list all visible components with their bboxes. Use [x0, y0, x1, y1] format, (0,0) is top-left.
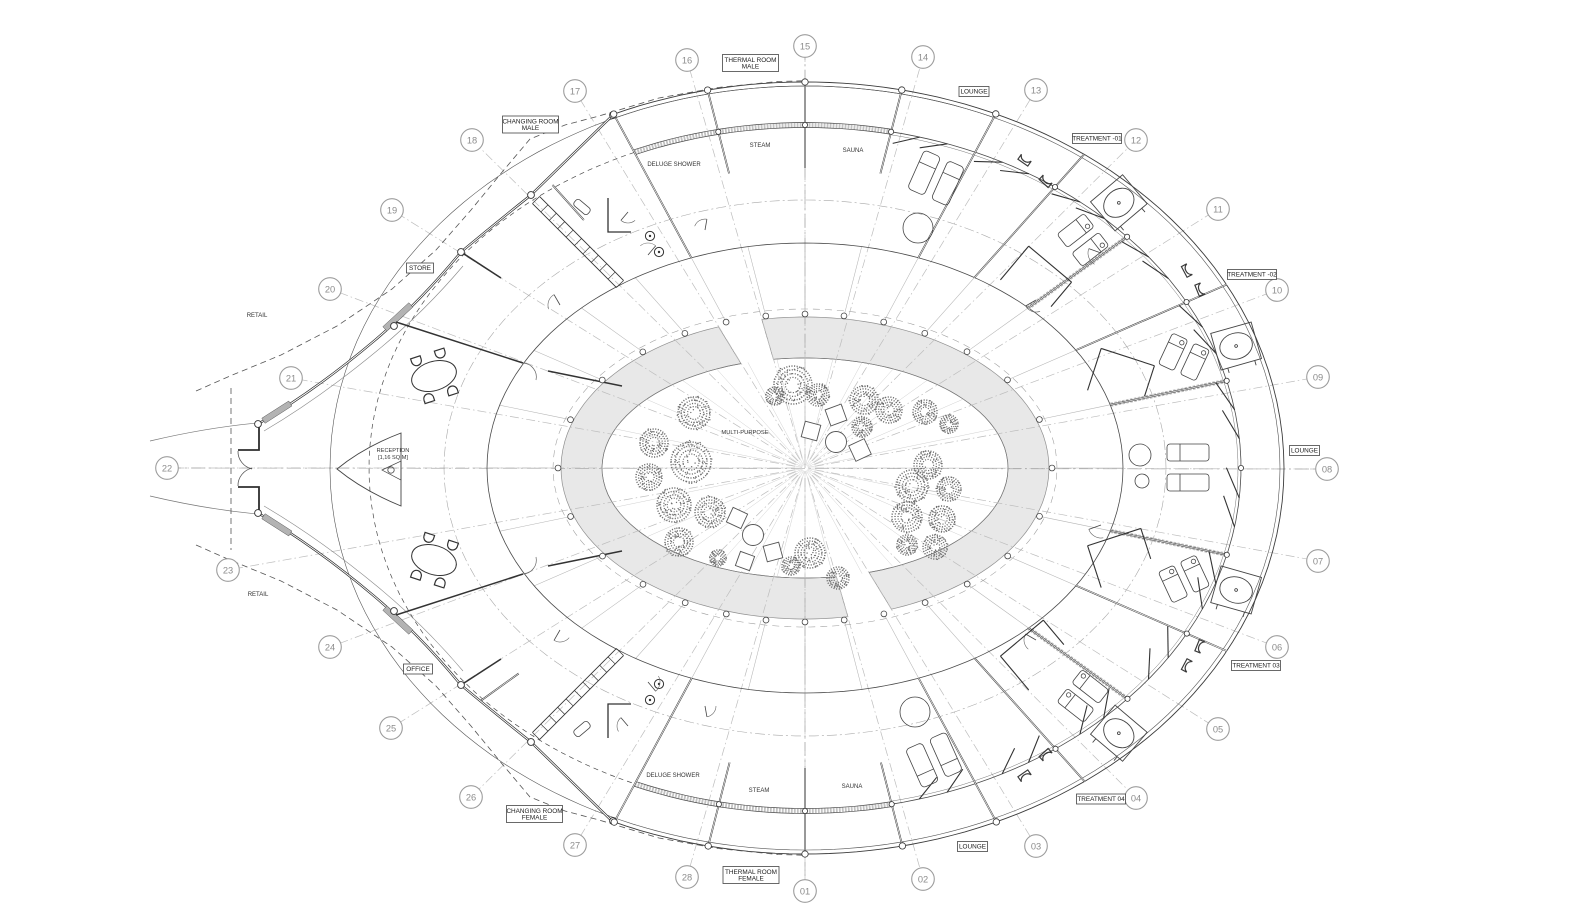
svg-text:18: 18	[467, 135, 477, 145]
svg-text:14: 14	[918, 52, 928, 62]
svg-text:19: 19	[387, 205, 397, 215]
svg-text:01: 01	[800, 886, 810, 896]
svg-text:LOUNGE: LOUNGE	[1291, 448, 1318, 455]
svg-text:RETAIL: RETAIL	[247, 313, 268, 319]
svg-text:TREATMENT 04: TREATMENT 04	[1077, 796, 1125, 803]
svg-text:STEAM: STEAM	[750, 143, 771, 149]
svg-text:FEMALE: FEMALE	[738, 875, 764, 882]
svg-text:07: 07	[1313, 556, 1323, 566]
svg-text:RECEPTION: RECEPTION	[377, 448, 410, 454]
svg-text:27: 27	[570, 840, 580, 850]
svg-text:LOUNGE: LOUNGE	[959, 844, 986, 851]
svg-text:03: 03	[1031, 841, 1041, 851]
svg-text:DELUGE SHOWER: DELUGE SHOWER	[647, 162, 701, 168]
svg-text:15: 15	[800, 41, 810, 51]
svg-text:02: 02	[918, 874, 928, 884]
svg-text:LOUNGE: LOUNGE	[961, 89, 988, 96]
svg-text:STORE: STORE	[409, 265, 431, 272]
svg-text:25: 25	[386, 723, 396, 733]
svg-text:MALE: MALE	[522, 125, 539, 132]
svg-text:10: 10	[1272, 285, 1282, 295]
svg-text:TREATMENT 03: TREATMENT 03	[1232, 663, 1280, 670]
svg-text:22: 22	[162, 463, 172, 473]
svg-text:SAUNA: SAUNA	[843, 148, 864, 154]
svg-text:MULTI-PURPOSE: MULTI-PURPOSE	[721, 430, 768, 436]
svg-text:DELUGE SHOWER: DELUGE SHOWER	[646, 773, 700, 779]
svg-text:17: 17	[570, 86, 580, 96]
svg-text:16: 16	[682, 55, 692, 65]
svg-text:08: 08	[1322, 464, 1332, 474]
svg-text:06: 06	[1272, 642, 1282, 652]
svg-text:09: 09	[1313, 372, 1323, 382]
svg-text:12: 12	[1131, 135, 1141, 145]
svg-text:05: 05	[1213, 724, 1223, 734]
svg-text:STEAM: STEAM	[749, 788, 770, 794]
svg-text:[1,16 SQ M]: [1,16 SQ M]	[378, 455, 408, 461]
svg-text:OFFICE: OFFICE	[406, 666, 429, 673]
svg-text:28: 28	[682, 872, 692, 882]
svg-text:SAUNA: SAUNA	[842, 784, 863, 790]
svg-text:26: 26	[466, 792, 476, 802]
svg-text:21: 21	[286, 373, 296, 383]
svg-text:11: 11	[1213, 204, 1223, 214]
svg-text:MALE: MALE	[742, 63, 759, 70]
svg-text:20: 20	[325, 284, 335, 294]
svg-text:04: 04	[1131, 793, 1141, 803]
svg-text:FEMALE: FEMALE	[522, 814, 548, 821]
svg-text:23: 23	[223, 565, 233, 575]
svg-text:RETAIL: RETAIL	[248, 592, 269, 598]
svg-text:TREATMENT -02: TREATMENT -02	[1227, 272, 1277, 279]
svg-text:24: 24	[325, 642, 335, 652]
svg-text:TREATMENT -01: TREATMENT -01	[1072, 136, 1122, 143]
svg-text:13: 13	[1031, 85, 1041, 95]
